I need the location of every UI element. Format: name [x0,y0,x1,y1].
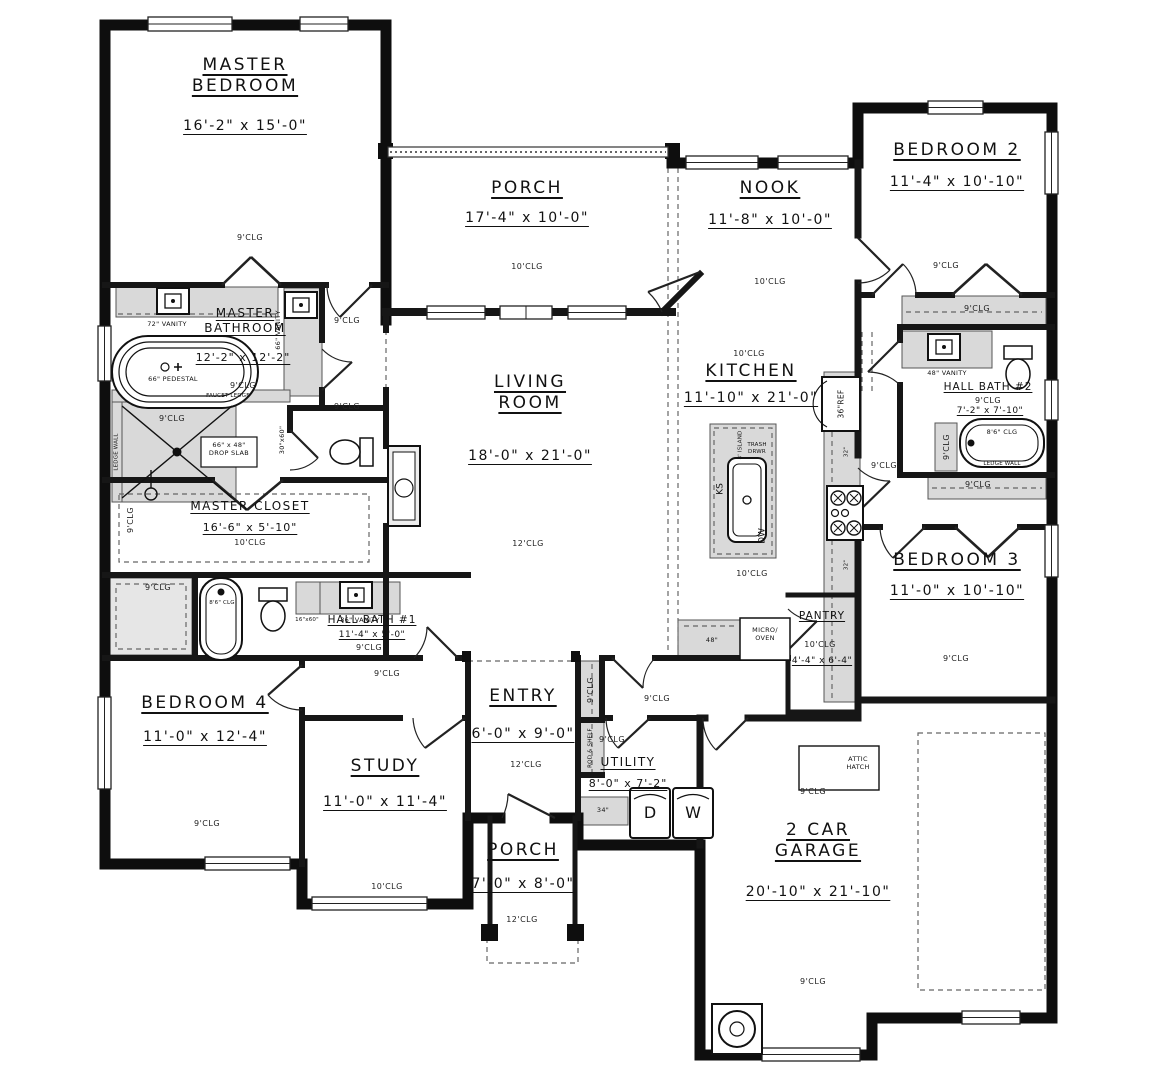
label-drop-slab: 66" x 48" DROP SLAB [204,441,254,457]
range-cooktop [827,486,863,540]
clg-porch-bottom: 12'CLG [506,915,538,925]
label-vanity72: 72" VANITY [147,320,187,328]
room-label-garage: 2 CAR GARAGE [751,820,886,863]
vanity-sink-icon [340,582,372,608]
clg-garage-top: 9'CLG [800,787,826,797]
room-label-master-closet: MASTER CLOSET [190,499,309,514]
clg-coat-closet: 9'CLG [586,677,596,703]
label-kitchen-sink: KS [715,483,726,495]
label-ledge-wall: LEDGE WALL [114,433,121,470]
label-micro-oven: MICRO/ OVEN [748,626,782,642]
clg-bedroom4: 9'CLG [194,819,220,829]
clg-kitchen-bottom: 10'CLG [736,569,768,579]
room-dims-bedroom2: 11'-4" x 10'-10" [890,174,1024,192]
label-vanity36: 36" VANITY [340,616,380,624]
fireplace-niche [388,446,420,526]
label-cab32: 32" [844,447,851,457]
clg-hall-bath1: 9'CLG [356,643,382,653]
room-label-living-room: LIVING ROOM [473,372,588,415]
room-dims-kitchen: 11'-10" x 21'-0" [684,390,818,408]
clg-bedroom2: 9'CLG [933,261,959,271]
clg-garage-bottom: 9'CLG [800,977,826,987]
room-dims-nook: 11'-8" x 10'-0" [708,212,832,230]
floorplan-page: MASTER BEDROOM 16'-2" x 15'-0" 9'CLG POR… [0,0,1150,1080]
room-dims-study: 11'-0" x 11'-4" [323,794,447,812]
room-dims-pantry: 4'-4" x 6'-4" [792,656,852,667]
clg-bath-hall: 9'CLG [871,461,897,471]
room-label-hall-bath2: HALL BATH #2 [944,381,1033,394]
label-linen: 16"x60" [295,617,319,624]
clg-living-room: 12'CLG [512,539,544,549]
hall-bath1-tub [200,578,242,660]
toilet-icon [330,438,373,466]
label-counter48: 48" [706,636,718,644]
clg-closet: 9'CLG [145,583,171,593]
clg-hall: 9'CLG [334,316,360,326]
room-dims-garage: 20'-10" x 21'-10" [746,884,891,902]
clg-kitchen-top: 10'CLG [733,349,765,359]
room-dims-hall-bath2: 7'-2" x 7'-10" [957,406,1023,417]
clg-master-closet: 10'CLG [234,538,266,548]
clg-hall-bath2: 9'CLG [975,396,1001,406]
water-heater [712,1004,762,1054]
room-dims-porch-bottom: 7'-0" x 8'-0" [472,876,575,894]
room-dims-living-room: 18'-0" x 21'-0" [468,448,592,466]
room-dims-master-closet: 16'-6" x 5'-10" [203,521,298,535]
label-ledge-wall2: LEDGE WALL [983,461,1020,468]
room-label-master-bedroom: MASTER BEDROOM [158,55,333,98]
label-cab32: 32" [844,560,851,570]
room-dims-entry: 6'-0" x 9'-0" [472,726,575,744]
clg-utility-hall: 9'CLG [599,735,625,745]
label-trash-drwr: TRASH DRWR [743,442,771,456]
room-dims-bedroom3: 11'-0" x 10'-10" [890,583,1024,601]
room-label-entry: ENTRY [489,686,556,707]
clg-nook: 10'CLG [754,277,786,287]
label-rod-shelf: ROD & SHELF [588,728,595,768]
label-faucet-ledge: FAUCET LEDGE [206,393,250,400]
room-label-bedroom3: BEDROOM 3 [893,550,1020,571]
room-dims-bedroom4: 11'-0" x 12'-4" [143,729,267,747]
label-fridge: 36"REF [836,389,845,418]
label-dishwasher: DW [757,528,768,544]
room-label-porch-bottom: PORCH [487,840,559,861]
vanity-sink-icon [157,288,189,314]
room-label-nook: NOOK [740,178,801,199]
room-label-master-bathroom: MASTER BATHROOM [190,306,300,336]
room-label-porch-top: PORCH [491,178,563,199]
room-label-utility: UTILITY [600,755,655,770]
clg-master-bathroom: 9'CLG [230,381,256,391]
clg-linen: 9'CLG [942,434,952,460]
hall-bath2-tub [960,419,1044,467]
label-pedestal: 66" PEDESTAL [148,375,198,383]
clg-hall: 9'CLG [334,402,360,412]
label-wc-size: 30"x60" [278,426,286,454]
porch-open-edge [388,147,668,157]
room-dims-hall-bath1: 11'-4" x 5'-0" [339,630,405,641]
clg-tub1: 8'6" CLG [209,600,235,607]
room-label-bedroom2: BEDROOM 2 [893,140,1020,161]
clg-closet-vert: 9'CLG [126,507,136,533]
room-label-pantry: PANTRY [799,610,845,623]
label-vanity66: 66" VANITY [274,310,282,350]
clg-mud-hall: 9'CLG [644,694,670,704]
room-dims-porch-top: 17'-4" x 10'-0" [465,210,589,228]
floorplan-drawing [0,0,1150,1080]
clg-tub2: 8'6" CLG [987,428,1018,436]
label-counter34: 34" [597,806,609,814]
room-dims-master-bathroom: 12'-2" x 12'-2" [196,351,291,365]
clg-bed4-hall: 9'CLG [374,669,400,679]
label-dryer: D [644,803,656,823]
room-label-bedroom4: BEDROOM 4 [141,693,268,714]
vanity-sink-icon [928,334,960,360]
label-washer: W [685,803,701,823]
room-dims-master-bedroom: 16'-2" x 15'-0" [183,118,307,136]
clg-band: 9'CLG [965,480,991,490]
clg-bed2-closet: 9'CLG [964,304,990,314]
room-label-kitchen: KITCHEN [705,361,796,382]
clg-bedroom3: 9'CLG [943,654,969,664]
room-label-study: STUDY [351,756,420,777]
clg-master-bedroom: 9'CLG [237,233,263,243]
toilet-icon [259,588,287,631]
clg-porch-top: 10'CLG [511,262,543,272]
clg-entry: 12'CLG [510,760,542,770]
clg-pantry: 10'CLG [804,640,836,650]
label-attic-hatch: ATTIC HATCH [838,755,878,771]
label-vanity48: 48" VANITY [927,369,967,377]
clg-shower: 9'CLG [159,414,185,424]
clg-study: 10'CLG [371,882,403,892]
room-dims-utility: 8'-0" x 7'-2" [589,777,668,791]
